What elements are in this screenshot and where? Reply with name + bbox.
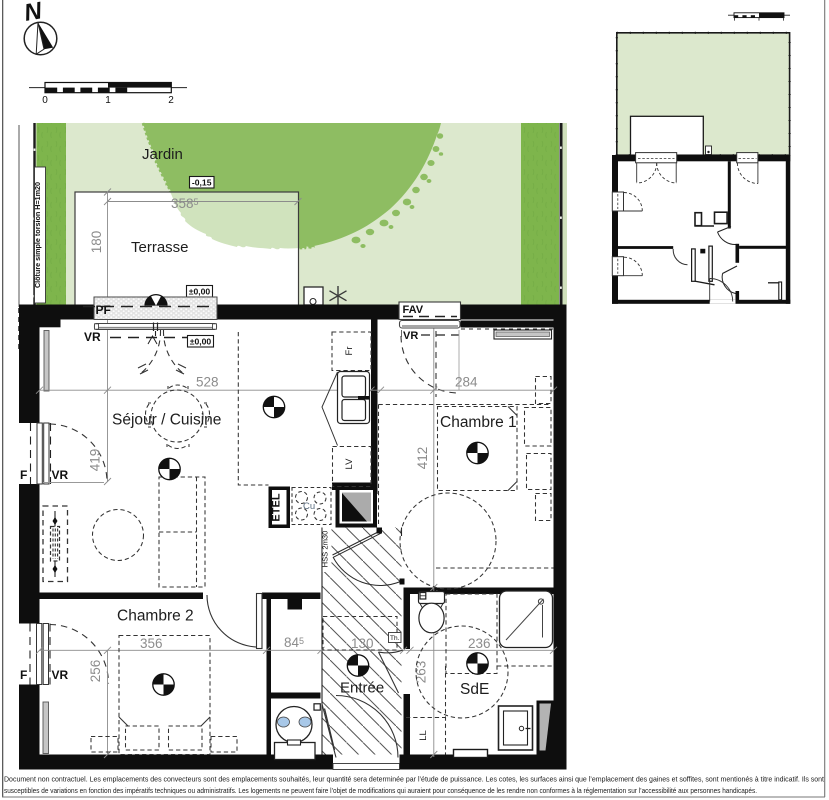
svg-text:VR: VR bbox=[403, 330, 418, 342]
svg-text:PF: PF bbox=[96, 303, 111, 317]
svg-text:528: 528 bbox=[196, 375, 219, 390]
svg-text:F: F bbox=[20, 468, 27, 482]
svg-text:Séjour / Cuisine: Séjour / Cuisine bbox=[112, 412, 221, 429]
svg-text:F: F bbox=[20, 668, 27, 682]
svg-text:256: 256 bbox=[88, 660, 103, 683]
svg-text:Clôture simple torsion H=1m20: Clôture simple torsion H=1m20 bbox=[33, 182, 42, 288]
svg-text:VR: VR bbox=[52, 468, 69, 482]
svg-text:Cu: Cu bbox=[303, 501, 315, 512]
svg-text:1: 1 bbox=[105, 95, 111, 106]
svg-text:130: 130 bbox=[351, 636, 374, 651]
svg-text:2: 2 bbox=[168, 95, 174, 106]
svg-text:Fr: Fr bbox=[344, 347, 355, 356]
svg-text:412: 412 bbox=[415, 447, 430, 470]
svg-text:LV: LV bbox=[344, 458, 355, 470]
svg-text:VR: VR bbox=[84, 330, 101, 344]
svg-text:Th.: Th. bbox=[390, 635, 400, 642]
svg-text:FAV: FAV bbox=[403, 304, 424, 316]
svg-text:VR: VR bbox=[52, 668, 69, 682]
svg-text:ETEL: ETEL bbox=[271, 493, 283, 521]
svg-text:LL: LL bbox=[418, 730, 429, 741]
svg-text:284: 284 bbox=[455, 375, 478, 390]
svg-text:Document non contractuel. Les: Document non contractuel. Les emplacemen… bbox=[4, 775, 824, 784]
svg-text:356: 356 bbox=[140, 636, 163, 651]
svg-text:-0,15: -0,15 bbox=[192, 178, 212, 188]
svg-text:Entrée: Entrée bbox=[340, 680, 384, 697]
svg-text:Chambre 2: Chambre 2 bbox=[117, 608, 194, 625]
svg-text:SdE: SdE bbox=[460, 681, 489, 698]
svg-text:236: 236 bbox=[468, 636, 491, 651]
svg-text:±0,00: ±0,00 bbox=[189, 287, 211, 297]
svg-text:0: 0 bbox=[42, 95, 48, 106]
svg-text:HSS 2m30: HSS 2m30 bbox=[321, 531, 330, 568]
svg-text:Jardin: Jardin bbox=[142, 146, 183, 163]
svg-text:Chambre 1: Chambre 1 bbox=[440, 414, 517, 431]
svg-text:Terrasse: Terrasse bbox=[131, 239, 189, 256]
svg-text:419: 419 bbox=[88, 449, 103, 472]
svg-text:180: 180 bbox=[89, 231, 104, 254]
svg-text:susceptibles de variations en: susceptibles de variations en fonction d… bbox=[4, 786, 757, 795]
svg-text:±0,00: ±0,00 bbox=[190, 337, 212, 347]
